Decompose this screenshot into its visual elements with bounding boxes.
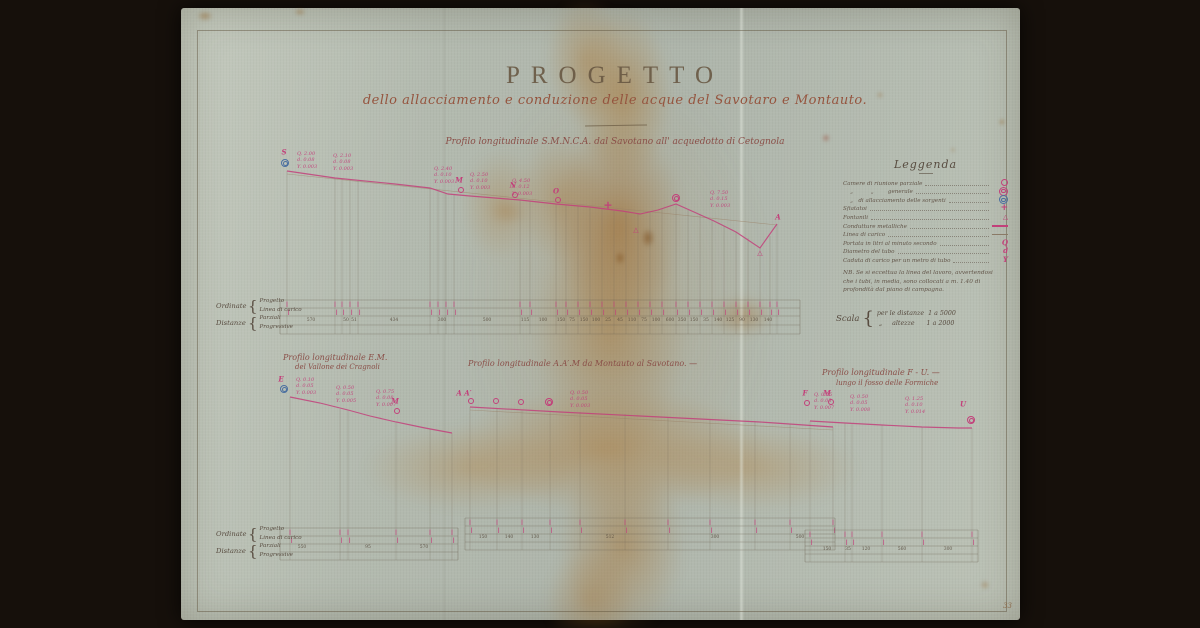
distance-value: 25 xyxy=(605,318,611,323)
annotation-layer: 5705051434300500115100150751501002545110… xyxy=(0,0,1200,628)
distance-value: 50 xyxy=(343,318,349,323)
circle-marker xyxy=(468,398,474,404)
point-label: M xyxy=(391,397,399,406)
point-label: S xyxy=(281,148,286,157)
point-label: A xyxy=(775,213,780,222)
distance-value: 115 xyxy=(521,318,530,323)
distance-value: 51 xyxy=(351,318,357,323)
distance-value: 300 xyxy=(711,535,720,540)
distance-value: 300 xyxy=(438,318,447,323)
distance-value: 570 xyxy=(307,318,316,323)
distance-value: 100 xyxy=(592,318,601,323)
circle-marker xyxy=(458,187,464,193)
distance-value: 300 xyxy=(944,547,953,552)
distance-value: 150 xyxy=(580,318,589,323)
distance-value: 150 xyxy=(823,547,832,552)
distance-value: 150 xyxy=(557,318,566,323)
qdy-annotation: Q. 0.25d. 0.05Y. 0.007 xyxy=(814,392,834,411)
circle-marker xyxy=(493,398,499,404)
point-label: O xyxy=(553,187,559,196)
distance-value: 570 xyxy=(420,545,429,550)
qdy-annotation: Q. 0.50d. 0.05Y. 0.005 xyxy=(336,385,356,404)
dcircle-blue-marker xyxy=(280,385,288,393)
circle-marker xyxy=(555,197,561,203)
distance-value: 35 xyxy=(703,318,709,323)
distance-value: 120 xyxy=(862,547,871,552)
qdy-annotation: Q. 2.10d. 0.08Y. 0.003 xyxy=(333,153,353,172)
point-label: F xyxy=(803,389,808,398)
qdy-annotation: Q. 1.25d. 0.10Y. 0.014 xyxy=(905,396,925,415)
qdy-annotation: Q. 0.10d. 0.05Y. 0.003 xyxy=(296,377,316,396)
triangle-marker: △ xyxy=(757,249,762,257)
distance-value: 75 xyxy=(641,318,647,323)
qdy-annotation: Q. 0.50d. 0.05Y. 0.008 xyxy=(850,394,870,413)
dcircle-blue-marker xyxy=(281,159,289,167)
distance-value: 35 xyxy=(845,547,851,552)
distance-value: 500 xyxy=(796,535,805,540)
distance-value: 350 xyxy=(678,318,687,323)
distance-value: 100 xyxy=(539,318,548,323)
distance-value: 140 xyxy=(714,318,723,323)
point-label: E xyxy=(278,375,283,384)
distance-value: 45 xyxy=(617,318,623,323)
distance-value: 130 xyxy=(531,535,540,540)
dcircle-marker xyxy=(967,416,975,424)
circle-marker xyxy=(804,400,810,406)
distance-value: 125 xyxy=(726,318,735,323)
point-label: M xyxy=(455,176,463,185)
distance-value: 512 xyxy=(606,535,615,540)
dcircle-marker xyxy=(545,398,553,406)
distance-value: 500 xyxy=(483,318,492,323)
distance-value: 434 xyxy=(390,318,399,323)
distance-value: 550 xyxy=(298,545,307,550)
distance-value: 560 xyxy=(898,547,907,552)
qdy-annotation: Q. 2.40d. 0.10Y. 0.003 xyxy=(434,166,454,185)
circle-marker xyxy=(512,192,518,198)
circle-marker xyxy=(518,399,524,405)
distance-value: 100 xyxy=(652,318,661,323)
distance-value: 130 xyxy=(750,318,759,323)
distance-value: 140 xyxy=(764,318,773,323)
dcircle-marker xyxy=(672,194,680,202)
circle-marker xyxy=(394,408,400,414)
distance-value: 600 xyxy=(666,318,675,323)
qdy-annotation: Q. 7.50d. 0.15Y. 0.003 xyxy=(710,190,730,209)
distance-value: 110 xyxy=(628,318,637,323)
point-label: U xyxy=(960,400,966,409)
qdy-annotation: Q. 2.00d. 0.08Y. 0.003 xyxy=(297,151,317,170)
distance-value: 95 xyxy=(365,545,371,550)
distance-value: 90 xyxy=(739,318,745,323)
point-label: N xyxy=(510,181,516,190)
qdy-annotation: Q. 0.50d. 0.05Y. 0.003 xyxy=(570,390,590,409)
distance-value: 140 xyxy=(505,535,514,540)
point-label: A A′ xyxy=(456,389,471,398)
distance-value: 150 xyxy=(690,318,699,323)
distance-value: 75 xyxy=(569,318,575,323)
distance-value: 150 xyxy=(479,535,488,540)
cross-marker: + xyxy=(603,199,612,212)
triangle-marker: △ xyxy=(633,226,638,234)
scanned-drawing: PROGETTO dello allacciamento e conduzion… xyxy=(0,0,1200,628)
qdy-annotation: Q. 2.50d. 0.10Y. 0.003 xyxy=(470,172,490,191)
